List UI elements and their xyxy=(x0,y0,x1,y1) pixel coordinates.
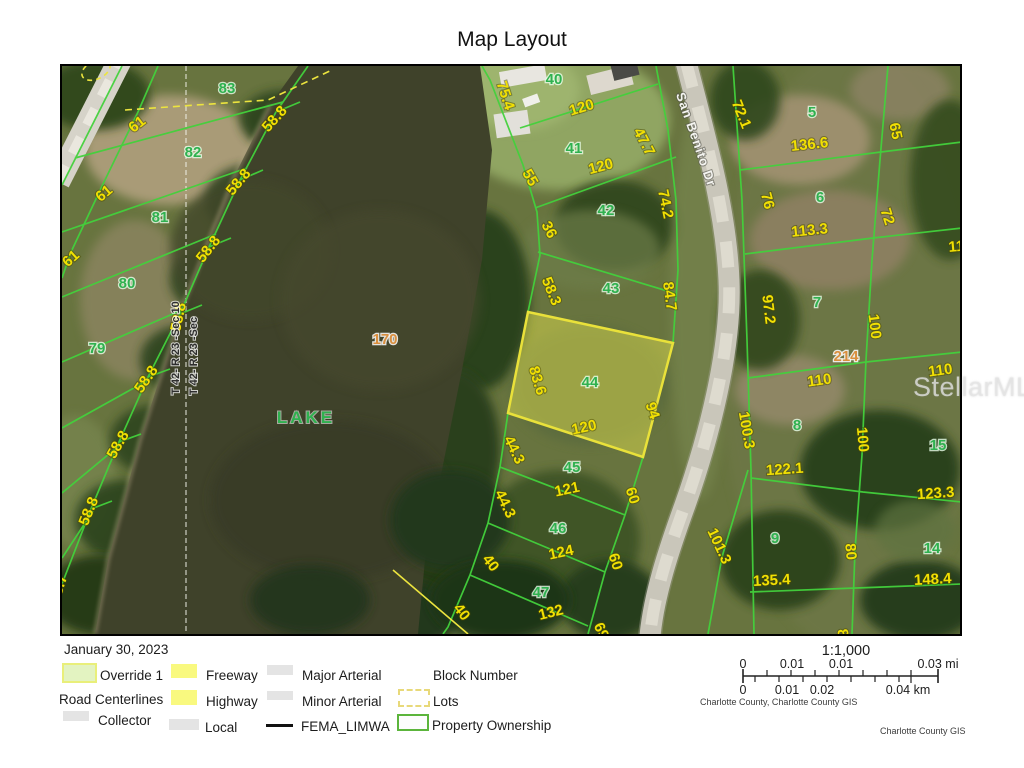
aerial-map: 61616158.858.858.858.858.858.858.858.775… xyxy=(62,66,960,634)
map-label-lot: 6 xyxy=(816,189,824,206)
map-label-dim: 65 xyxy=(885,121,905,141)
map-label-lot: 8 xyxy=(793,417,801,434)
map-date: January 30, 2023 xyxy=(64,642,168,657)
legend-swatch-local xyxy=(169,719,199,730)
map-label-dim: 123.3 xyxy=(916,484,955,504)
legend-label-fema-limwa: FEMA_LIMWA xyxy=(301,719,390,734)
map-label-lot: 81 xyxy=(152,209,169,226)
legend-swatch-override xyxy=(62,663,97,683)
legend-label-road-centerlines: Road Centerlines xyxy=(59,692,163,707)
map-canvas: 61616158.858.858.858.858.858.858.858.775… xyxy=(60,64,962,636)
legend-swatch-freeway xyxy=(171,664,197,678)
map-label-dim: 135.4 xyxy=(753,571,792,590)
map-label-lot: 82 xyxy=(185,144,202,161)
legend-label-lots: Lots xyxy=(433,694,459,709)
legend-label-block-number: Block Number xyxy=(433,668,518,683)
map-label-lot: 43 xyxy=(603,280,620,297)
legend-swatch-lots xyxy=(398,689,430,707)
scale-bar-ticks xyxy=(738,668,950,684)
legend-swatch-minor-arterial xyxy=(267,691,293,700)
map-label-lot: 83 xyxy=(219,80,236,97)
map-label-lot: 9 xyxy=(771,530,779,547)
map-label-lot: 15 xyxy=(930,437,947,454)
scale-km-tick-label: 0.04 km xyxy=(886,683,930,697)
map-label-dim: 110 xyxy=(948,237,960,256)
map-label-lot: 44 xyxy=(582,374,599,391)
map-label-block: 170 xyxy=(372,331,397,348)
map-label-lot: 14 xyxy=(924,540,941,557)
map-label-dim: 100 xyxy=(853,426,872,452)
map-label-lot: 42 xyxy=(598,202,615,219)
legend-label-highway: Highway xyxy=(206,694,258,709)
map-label-lot: 5 xyxy=(808,104,816,121)
map-label-dim: 80 xyxy=(841,543,859,561)
scale-km-tick-label: 0 xyxy=(740,683,747,697)
map-label-lot: 79 xyxy=(89,340,106,357)
legend-swatch-fema-limwa xyxy=(266,724,293,727)
map-label-section: T 42- R 23 -Sec 10 xyxy=(170,301,182,395)
map-label-lot: 7 xyxy=(813,294,821,311)
map-label-dim: 122.1 xyxy=(765,460,804,480)
map-label-dim: 97.2 xyxy=(758,294,778,325)
bottom-right-credit: Charlotte County GIS xyxy=(880,726,960,736)
map-label-lot: 47 xyxy=(533,584,550,601)
map-source-credit: Charlotte County, Charlotte County GIS xyxy=(700,697,857,707)
map-label-lot: 80 xyxy=(119,275,136,292)
legend-label-property-ownership: Property Ownership xyxy=(432,718,551,733)
map-label-dim: 100 xyxy=(865,313,885,340)
map-label-lake: LAKE xyxy=(277,408,335,427)
map-label-block: 214 xyxy=(833,348,859,365)
stellar-mls-watermark: StellarMLS xyxy=(913,372,1024,403)
legend-label-collector: Collector xyxy=(98,713,151,728)
map-layout-page: Map Layout xyxy=(0,0,1024,768)
scale-km-tick-label: 0.01 xyxy=(775,683,799,697)
map-label-dim: 110 xyxy=(806,370,832,390)
legend-swatch-collector xyxy=(63,711,89,721)
legend-label-major-arterial: Major Arterial xyxy=(302,668,382,683)
legend-swatch-property-ownership xyxy=(397,714,429,731)
map-label-dim: 148.4 xyxy=(914,570,953,589)
map-label-lot: 40 xyxy=(546,71,563,88)
legend-label-local: Local xyxy=(205,720,237,735)
page-title: Map Layout xyxy=(0,28,1024,52)
legend-label-override: Override 1 xyxy=(100,668,163,683)
scale-km-tick-label: 0.02 xyxy=(810,683,834,697)
map-label-lot: 45 xyxy=(564,459,581,476)
legend-swatch-major-arterial xyxy=(267,665,293,675)
map-label-lot: 46 xyxy=(550,520,567,537)
legend-label-minor-arterial: Minor Arterial xyxy=(302,694,382,709)
legend-label-freeway: Freeway xyxy=(206,668,258,683)
map-label-section: T 42- R 23 -Sec xyxy=(188,317,200,395)
legend-swatch-highway xyxy=(171,690,197,705)
map-label-lot: 41 xyxy=(566,140,583,157)
